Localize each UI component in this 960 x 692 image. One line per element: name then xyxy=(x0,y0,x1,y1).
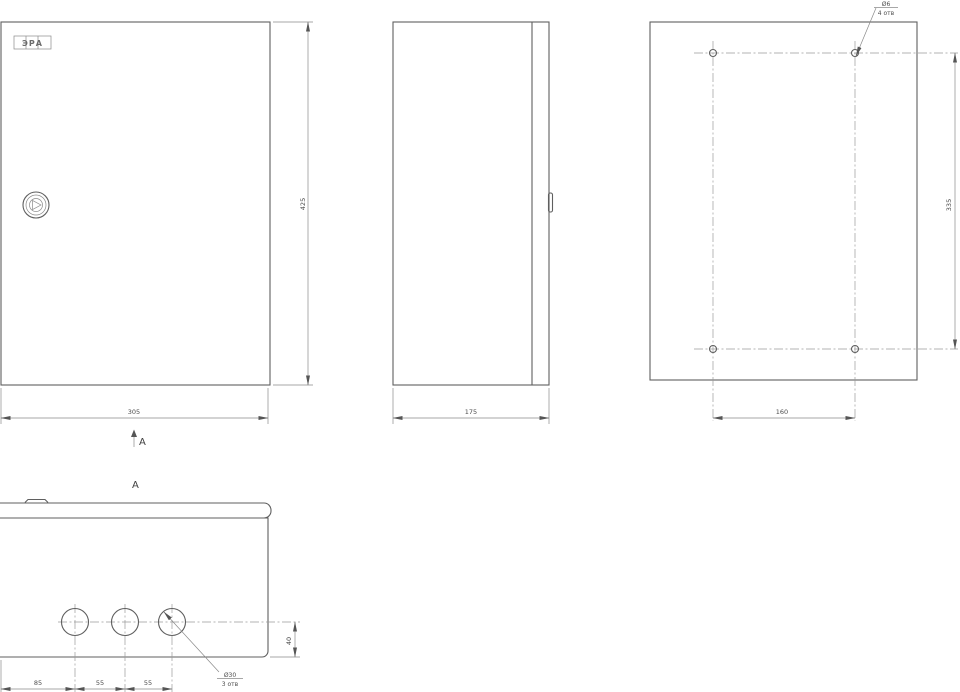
bottom-view: A Ø30 3 отв 40 xyxy=(0,480,300,692)
bottom-spacing-dim-text: 85 xyxy=(34,679,42,687)
bottom-spacing-dim-text: 55 xyxy=(144,679,152,687)
flange-band xyxy=(0,503,271,518)
view-arrow-label: A xyxy=(139,437,146,448)
view-arrow-icon xyxy=(131,430,137,438)
back-spacing-h-dimension: 160 xyxy=(713,408,855,418)
side-depth-dimension: 175 xyxy=(393,388,549,424)
front-view-outline xyxy=(1,22,270,385)
front-height-dimension: 425 xyxy=(273,22,313,385)
bottom-hole-note: Ø30 3 отв xyxy=(164,612,243,688)
front-height-dim-text: 425 xyxy=(299,198,307,210)
back-spacing-v-text: 335 xyxy=(945,199,953,211)
bottom-spacing-dim-text: 55 xyxy=(96,679,104,687)
side-depth-dim-text: 175 xyxy=(465,408,477,416)
technical-drawing-canvas: ЭРА 425 305 A xyxy=(0,0,960,692)
lock-middle-ring xyxy=(26,195,46,215)
bottom-spacing-dimensions: 85 55 55 xyxy=(1,660,172,692)
front-width-dimension: 305 xyxy=(1,388,268,424)
back-hole-dia-text: Ø6 xyxy=(882,1,891,8)
bottom-hole-dia-text: Ø30 xyxy=(224,672,237,679)
door-lock-icon xyxy=(23,192,49,218)
bottom-offset-dimension: 40 xyxy=(270,622,300,657)
back-spacing-v-dimension: 335 xyxy=(945,53,955,349)
view-direction-arrow: A xyxy=(131,430,146,449)
back-spacing-h-text: 160 xyxy=(776,408,788,416)
brand-logo: ЭРА xyxy=(14,36,51,49)
side-view: 175 xyxy=(393,22,553,424)
hinge-tab xyxy=(25,500,48,503)
back-view: Ø6 4 отв 160 335 xyxy=(650,1,958,421)
bottom-body-outline xyxy=(0,518,268,657)
lock-outer-ring xyxy=(23,192,49,218)
bottom-offset-dim-text: 40 xyxy=(285,637,293,645)
front-width-dim-text: 305 xyxy=(128,408,140,416)
bottom-view-title: A xyxy=(132,480,139,491)
front-view: ЭРА 425 305 A xyxy=(1,22,313,448)
brand-logo-text: ЭРА xyxy=(22,39,43,48)
back-hole-qty-text: 4 отв xyxy=(878,10,895,17)
back-view-outline xyxy=(650,22,917,380)
back-hole-note: Ø6 4 отв xyxy=(856,1,898,56)
lock-triangle-icon xyxy=(33,201,42,210)
side-view-outline xyxy=(393,22,549,385)
bottom-hole-qty-text: 3 отв xyxy=(222,681,239,688)
